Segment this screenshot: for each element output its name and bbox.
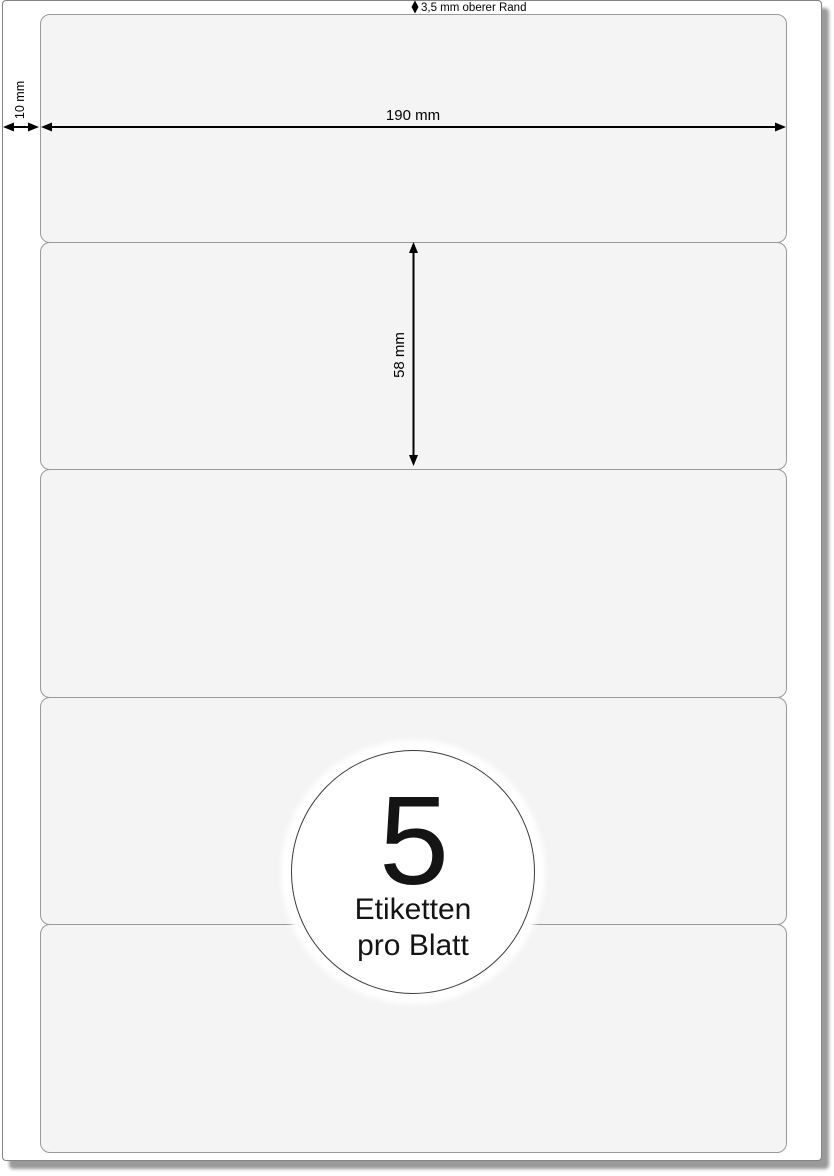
- label-slot-2: [40, 242, 787, 470]
- badge-line-1: Etiketten: [355, 892, 472, 927]
- count-badge: 5 Etiketten pro Blatt: [291, 750, 535, 994]
- badge-line-2: pro Blatt: [357, 928, 469, 963]
- label-slot-1: [40, 14, 787, 243]
- label-sheet-diagram: 3,5 mm oberer Rand 10 mm 190 mm 58 mm 5 …: [0, 0, 834, 1176]
- badge-count: 5: [379, 789, 447, 892]
- label-slot-3: [40, 469, 787, 698]
